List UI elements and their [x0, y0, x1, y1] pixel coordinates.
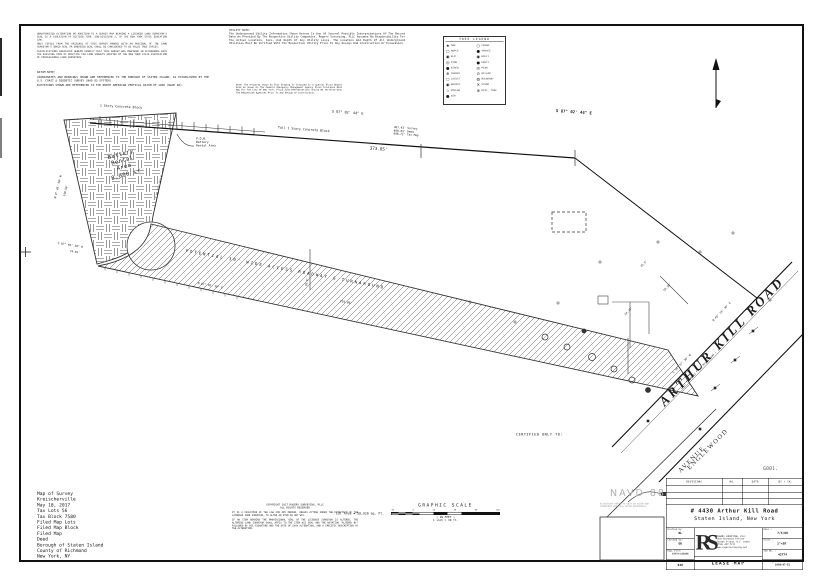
tree-symbol-icon: ◎ [476, 66, 481, 71]
drafted-by-cell: Drafted by: BL [667, 528, 695, 539]
tree-symbol-icon: ○ [446, 49, 451, 54]
firm-line: www.rogerssurveying.net [717, 546, 750, 549]
graphic-scale-title: GRAPHIC SCALE [388, 503, 503, 508]
survey-info-line: New York, NY [37, 554, 167, 560]
date-cell: Date : 7/5/00 [763, 528, 803, 539]
tree-label: MAPLE [451, 50, 459, 53]
tree-symbol-icon: ● [446, 94, 451, 99]
datum-note-title: DATUM NOTE: [37, 71, 209, 74]
legend-row: ● ASH [446, 93, 474, 99]
tree-symbol-icon: ● [476, 49, 481, 54]
checked-by-cell: Checked by: DD [667, 539, 695, 550]
scale-tick-numbers: 300153060120 [392, 509, 500, 512]
dimension-ticks [176, 113, 575, 166]
tree-label: LOCUST [451, 78, 460, 81]
dashed-structure [552, 212, 586, 232]
tree-label: BIRCH [451, 67, 459, 70]
tree-legend-left-column: ★ OAK ○ MAPLE ◉ ELM [446, 43, 474, 99]
tree-symbol-icon: ◉ [446, 83, 451, 88]
tree-label: POPLAR [451, 89, 460, 92]
tree-label: PEAR [482, 67, 488, 70]
revision-table-header: REVISIONS NO. DATE BY / CK. [667, 479, 803, 487]
tree-legend: TREE LEGEND ★ OAK ○ MAPLE [443, 36, 506, 105]
fb-pg-cell: F.B./Pg. 1004/47-51 [763, 560, 803, 570]
title-block-center: RS ROGERS SURVEYING, PLLC1632 Richmond T… [695, 528, 763, 570]
tree-symbol-icon: ● [476, 60, 481, 65]
tree-label: MULBERRY [482, 78, 494, 81]
main-title-block: # 4430 Arthur Kill Road Staten Island, N… [666, 505, 803, 570]
title-block-left-column: Drafted by: BL Checked by: DD Dwg. File:… [667, 528, 695, 570]
datum-note-p2: ELEVATIONS SHOWN ARE REFERENCED TO THE N… [37, 84, 209, 87]
tree-symbol-icon: ★ [446, 44, 451, 49]
title-block-assembly: REVISIONS NO. DATE BY / CK. # 4430 Arthu… [666, 478, 803, 570]
datum-note-block: DATUM NOTE: COORDINATES AND BEARINGS SHO… [37, 71, 209, 104]
legend-row: ⊕ MISC. TREE [476, 88, 504, 94]
disk-no-cell: Disk No. 948 [667, 560, 695, 570]
title-block-right-column: Date : 7/5/00 Scale : 1"=30' Job No. : 4… [763, 528, 803, 570]
utility-note-block: UTILITY NOTE: The Underground Utility In… [229, 29, 405, 62]
label-navd88: NAVD 88 [610, 489, 666, 499]
navd-box [600, 517, 664, 560]
tree-legend-title: TREE LEGEND [446, 38, 504, 43]
pob-leader [177, 134, 194, 146]
address-line-2: Staten Island, New York [667, 516, 803, 522]
scale-inch-equals: 1 inch = 30 ft. [388, 519, 503, 522]
tree-label: CHERRY [451, 73, 460, 76]
tree-legend-right-column: ○ CEDAR ● SPRUCE ◉ HOLLY [476, 43, 504, 99]
arthur-kill-road-east-line [659, 334, 803, 482]
copyright-para-1: IT IS A VIOLATION OF THE LAW FOR ANY PER… [232, 512, 358, 518]
copyright-para-2: IF AN ITEM BEARING THE PROFESSIONAL SEAL… [232, 519, 358, 530]
datum-note-p1: COORDINATES AND BEARINGS SHOWN ARE REFER… [37, 76, 209, 83]
tree-symbol-icon: ◉ [446, 55, 451, 60]
tree-label: SPRUCE [482, 50, 491, 53]
utility-note-body: The Underground Utility Information Show… [229, 32, 405, 45]
copyright-block: COPYRIGHT 2017 ROGERS SURVEYING, PLLC AL… [232, 504, 358, 557]
spot-elevation-marks [468, 231, 772, 324]
tree-label: PINE [451, 61, 457, 64]
tree-symbol-icon: ● [446, 66, 451, 71]
tree-symbol-icon: ⊕ [476, 88, 481, 93]
tree-label: WILLOW [482, 73, 491, 76]
revision-table: REVISIONS NO. DATE BY / CK. [666, 478, 803, 505]
scale-bar [391, 512, 500, 515]
tree-label: CEDAR [482, 45, 490, 48]
tree-symbol-icon: ☆ [446, 88, 451, 93]
rogers-surveying-logo: RS [696, 532, 714, 552]
copyright-line-2: ALL RIGHTS RESERVED [232, 507, 358, 510]
graphic-scale-block: GRAPHIC SCALE 300153060120 ( IN FEET ) 1… [388, 503, 503, 541]
tree-label: ELM [451, 56, 456, 59]
flood-note-block: Note: The Property Shown On This Drawing… [236, 84, 342, 105]
tree-symbol-icon: ⊙ [476, 72, 481, 77]
tree-symbol-icon: ◎ [446, 60, 451, 65]
tree-label: FRUIT [482, 61, 490, 64]
boundary-northeast [575, 158, 757, 298]
label-g001: G001. [763, 466, 778, 472]
dwg-file-cell: Dwg. File: 43774-LEASE6 [667, 549, 695, 560]
job-no-cell: Job No. : 43774 [763, 549, 803, 560]
north-arrow-icon [713, 58, 722, 108]
tree-symbol-icon: ◍ [476, 77, 481, 82]
flood-note: Note: The Property Shown On This Drawing… [236, 84, 342, 94]
tree-symbol-icon: ⊕ [446, 72, 451, 77]
firm-contact-block: ROGERS SURVEYING, PLLC1632 Richmond Terr… [717, 535, 750, 549]
project-address: # 4430 Arthur Kill Road Staten Island, N… [667, 505, 803, 528]
map-type-label: LEASE MAP [695, 557, 763, 571]
label-certified-only-to: CERTIFIED ONLY TO: [516, 433, 563, 437]
border-benchmark-tick [20, 247, 31, 257]
address-line-1: # 4430 Arthur Kill Road [667, 508, 803, 515]
label-dimension-stack: 407.43' Survey 408.03' Deed 408.72' Tax … [393, 126, 419, 138]
revision-row [667, 499, 803, 505]
scale-cell: Scale : 1"=30' [763, 539, 803, 550]
tree-label: HOLLY [482, 56, 490, 59]
tree-symbol-icon: ◉ [476, 55, 481, 60]
tree-symbol-icon: ○ [446, 77, 451, 82]
tree-label: MISC. TREE [482, 89, 497, 92]
tree-label: ASH [451, 95, 456, 98]
tree-symbol-icon: ○ [476, 44, 481, 49]
label-pob: P.O.B. Battery Rental Area [196, 137, 216, 148]
tree-label: OAK [451, 45, 456, 48]
tree-label: WALNUT [451, 84, 460, 87]
tree-label: STUMP [482, 84, 490, 87]
tree-symbol-icon: ✕ [476, 83, 481, 88]
survey-sheet: UNAUTHORIZED ALTERATION OR ADDITION TO A… [0, 0, 823, 588]
